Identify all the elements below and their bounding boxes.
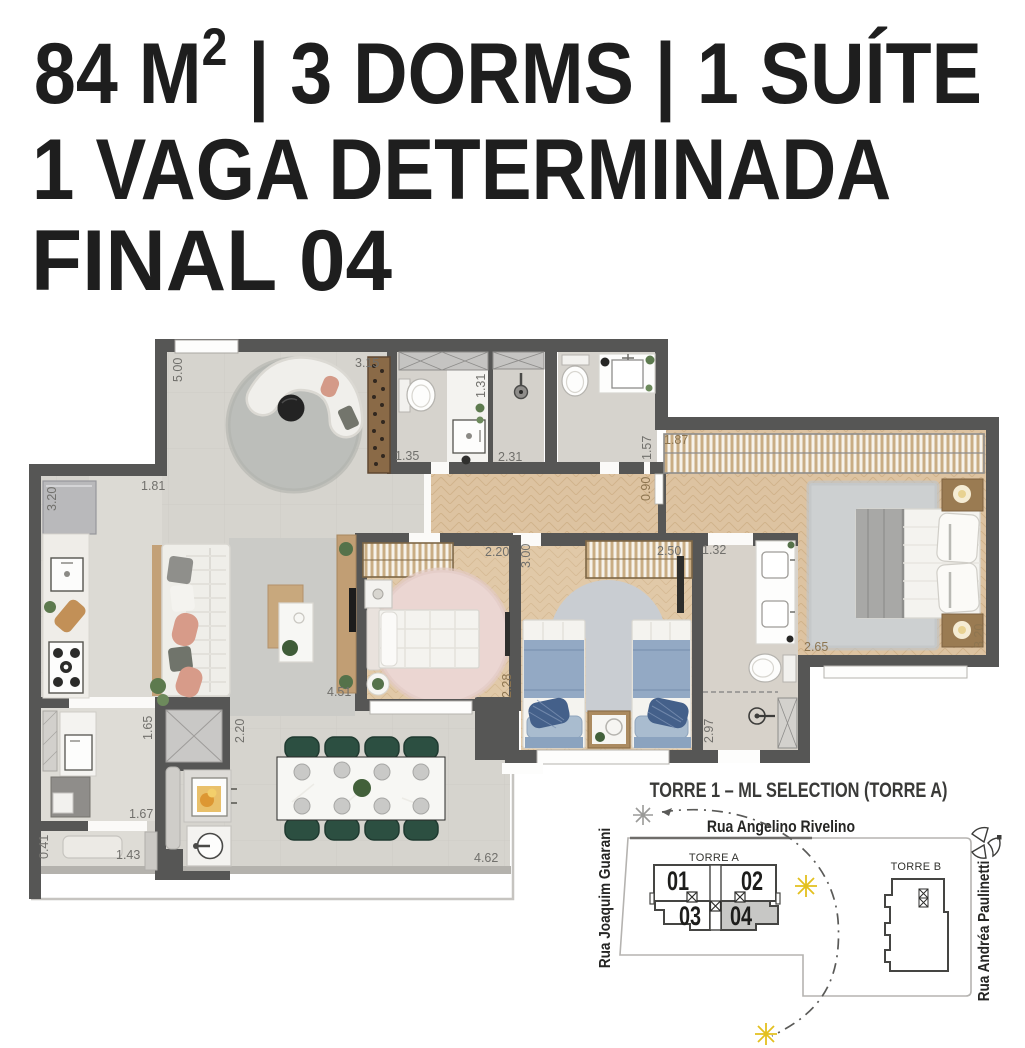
svg-text:Rua Angelino Rivelino: Rua Angelino Rivelino [707,818,855,836]
svg-text:04: 04 [730,901,752,930]
svg-text:0.41: 0.41 [37,835,51,859]
svg-text:1.87: 1.87 [664,433,688,447]
svg-text:2.50: 2.50 [657,544,681,558]
svg-text:1.57: 1.57 [640,436,654,460]
svg-text:TORRE A: TORRE A [689,852,740,864]
svg-text:TORRE B: TORRE B [891,861,942,873]
svg-text:3.15: 3.15 [355,356,379,370]
svg-text:1.67: 1.67 [129,807,153,821]
svg-text:1.65: 1.65 [141,716,155,740]
svg-text:84 M2 | 3 DORMS | 1 SUÍTE: 84 M2 | 3 DORMS | 1 SUÍTE [34,17,982,123]
svg-text:1 VAGA DETERMINADA: 1 VAGA DETERMINADA [32,122,891,219]
svg-text:2.65: 2.65 [804,640,828,654]
svg-text:1.31: 1.31 [474,374,488,398]
svg-text:1.35: 1.35 [395,449,419,463]
svg-text:4.62: 4.62 [474,851,498,865]
svg-text:4.51: 4.51 [327,685,351,699]
svg-text:1.43: 1.43 [116,848,140,862]
svg-text:2.20: 2.20 [485,545,509,559]
svg-text:3.20: 3.20 [45,487,59,511]
svg-text:03: 03 [679,901,701,930]
svg-text:1.81: 1.81 [141,479,165,493]
svg-text:3.00: 3.00 [519,544,533,568]
svg-text:TORRE 1 – ML SELECTION (TORRE: TORRE 1 – ML SELECTION (TORRE A) [650,779,948,803]
svg-text:Rua Andréa Paulinetti: Rua Andréa Paulinetti [976,861,993,1002]
svg-text:2.31: 2.31 [498,450,522,464]
svg-text:Rua Joaquim Guarani: Rua Joaquim Guarani [597,828,614,968]
svg-text:FINAL 04: FINAL 04 [31,213,392,310]
svg-text:5.00: 5.00 [171,358,185,382]
svg-text:1.32: 1.32 [702,543,726,557]
svg-text:2.97: 2.97 [702,719,716,743]
svg-text:3.20: 3.20 [972,624,986,648]
svg-text:02: 02 [741,866,763,895]
svg-text:2.28: 2.28 [500,674,514,698]
svg-text:01: 01 [667,866,689,895]
svg-text:0.90: 0.90 [639,477,653,501]
svg-text:2.20: 2.20 [233,719,247,743]
